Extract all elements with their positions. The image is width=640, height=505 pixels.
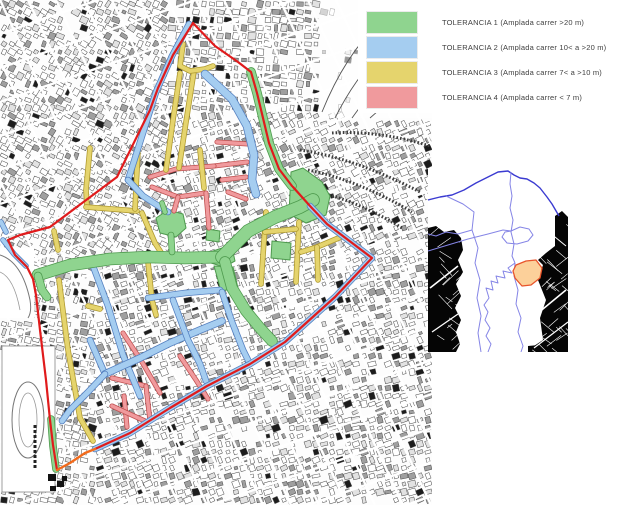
legend: TOLERANCIA 1 (Amplada carrer >20 m) TOLE… xyxy=(367,11,637,111)
legend-row: TOLERANCIA 3 (Amplada carrer 7< a >10 m) xyxy=(367,61,637,86)
tolerancia-3-swatch xyxy=(367,62,417,83)
tolerancia-4-label: TOLERANCIA 4 (Amplada carrer < 7 m) xyxy=(442,86,582,109)
tolerancia-2-swatch xyxy=(367,37,417,58)
tolerancia-3-label: TOLERANCIA 3 (Amplada carrer 7< a >10 m) xyxy=(442,61,602,84)
legend-row: TOLERANCIA 1 (Amplada carrer >20 m) xyxy=(367,11,637,36)
inset-svg xyxy=(428,168,568,352)
tolerancia-1-swatch xyxy=(367,12,417,33)
location-inset-map xyxy=(428,168,568,352)
tolerancia-2-label: TOLERANCIA 2 (Amplada carrer 10< a >20 m… xyxy=(442,36,606,59)
tolerancia-4-swatch xyxy=(367,87,417,108)
map-screenshot: TOLERANCIA 1 (Amplada carrer >20 m) TOLE… xyxy=(0,0,640,505)
legend-row: TOLERANCIA 2 (Amplada carrer 10< a >20 m… xyxy=(367,36,637,61)
tolerancia-1-label: TOLERANCIA 1 (Amplada carrer >20 m) xyxy=(442,11,584,34)
legend-row: TOLERANCIA 4 (Amplada carrer < 7 m) xyxy=(367,86,637,111)
